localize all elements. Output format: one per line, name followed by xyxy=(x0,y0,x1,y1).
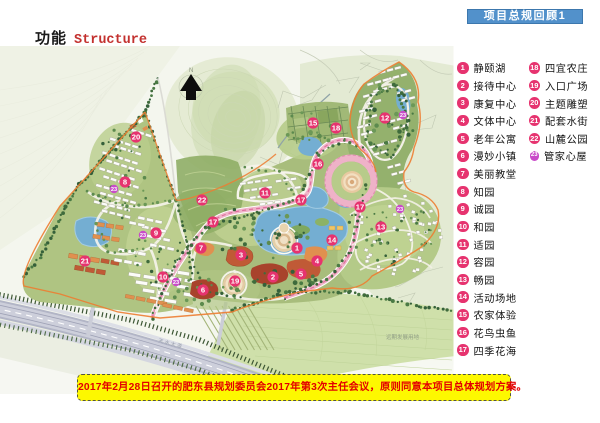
svg-text:2: 2 xyxy=(271,273,275,282)
svg-text:19: 19 xyxy=(231,277,239,286)
svg-text:22: 22 xyxy=(198,196,206,205)
svg-text:14: 14 xyxy=(328,236,337,245)
svg-text:17: 17 xyxy=(356,203,364,212)
svg-text:12: 12 xyxy=(381,114,389,123)
svg-text:23: 23 xyxy=(173,280,179,286)
svg-text:8: 8 xyxy=(123,178,127,187)
svg-text:13: 13 xyxy=(377,223,385,232)
svg-text:N: N xyxy=(189,68,193,74)
svg-text:7: 7 xyxy=(199,244,203,253)
svg-text:21: 21 xyxy=(81,257,90,266)
svg-text:23: 23 xyxy=(140,233,146,239)
svg-text:3: 3 xyxy=(239,251,243,260)
svg-text:17: 17 xyxy=(297,196,305,205)
svg-text:20: 20 xyxy=(132,133,140,142)
svg-text:远期发展用地: 远期发展用地 xyxy=(386,333,420,341)
svg-text:18: 18 xyxy=(332,124,340,133)
svg-text:17: 17 xyxy=(209,218,217,227)
svg-text:10: 10 xyxy=(159,273,167,282)
svg-text:23: 23 xyxy=(397,207,403,213)
svg-text:16: 16 xyxy=(314,160,322,169)
svg-text:23: 23 xyxy=(111,187,117,193)
svg-text:23: 23 xyxy=(400,113,406,119)
svg-text:15: 15 xyxy=(309,119,318,128)
svg-text:9: 9 xyxy=(154,229,158,238)
svg-text:6: 6 xyxy=(201,286,205,295)
svg-text:11: 11 xyxy=(261,189,270,198)
